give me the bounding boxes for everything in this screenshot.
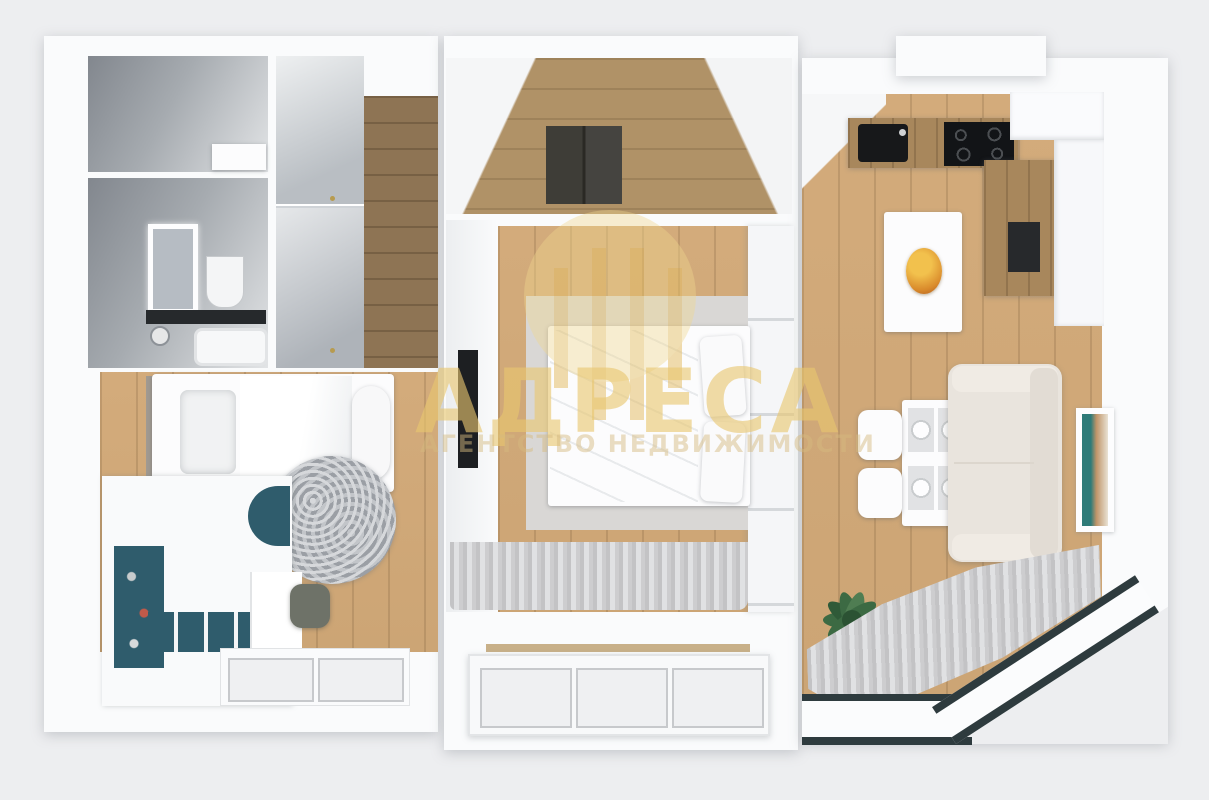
wardrobe-door-upper	[276, 56, 364, 206]
loggia-window-pane	[576, 668, 668, 728]
dining-chair	[858, 410, 902, 460]
sofa-back-cushion	[1030, 368, 1058, 558]
bedroom-wardrobe	[748, 226, 794, 612]
corridor-floor	[364, 96, 438, 368]
right-wing-top-step	[896, 36, 1046, 76]
bathtub	[194, 328, 268, 366]
shower-fixture-icon	[150, 326, 170, 346]
kids-window-pane	[318, 658, 404, 702]
bay-frame-outer	[802, 737, 972, 745]
desk-chair	[290, 584, 330, 628]
dining-chair	[858, 468, 902, 518]
fruit-bowl	[906, 248, 942, 294]
loggia-window-pane	[480, 668, 572, 728]
tall-cabinets	[1054, 140, 1104, 326]
bed-pillow	[700, 421, 746, 503]
double-bed-duvet	[550, 330, 698, 502]
entry-doormat	[546, 126, 622, 204]
toilet	[206, 256, 244, 308]
bathroom-mirror	[148, 224, 198, 314]
loggia-window-pane	[672, 668, 764, 728]
wardrobe-handle-icon	[330, 348, 335, 353]
sofa-seat-seam	[954, 462, 1034, 464]
wc-shelf	[212, 144, 266, 170]
wardrobe-handle-icon	[330, 196, 335, 201]
tv-panel	[458, 350, 478, 468]
wardrobe-door-lower	[276, 208, 364, 368]
entry-hall-wall-wedge	[596, 58, 792, 214]
upper-cabinets	[1010, 92, 1104, 140]
bed-pillow	[699, 335, 746, 418]
bedroom-curtains	[450, 542, 748, 610]
place-setting	[908, 408, 934, 452]
kids-window-pane	[228, 658, 314, 702]
loggia-sill-strip	[486, 644, 750, 652]
bay-frame-inner	[802, 694, 956, 701]
kids-bed-pillow	[180, 390, 236, 474]
vanity-counter	[146, 310, 266, 324]
wall-art-beach	[1082, 414, 1108, 526]
oven-niche	[1008, 222, 1040, 272]
floor-plan-render: АДРЕСА АГЕНТСТВО НЕДВИЖИМОСТИ	[0, 0, 1209, 800]
faucet-icon	[899, 129, 906, 136]
place-setting	[908, 466, 934, 510]
